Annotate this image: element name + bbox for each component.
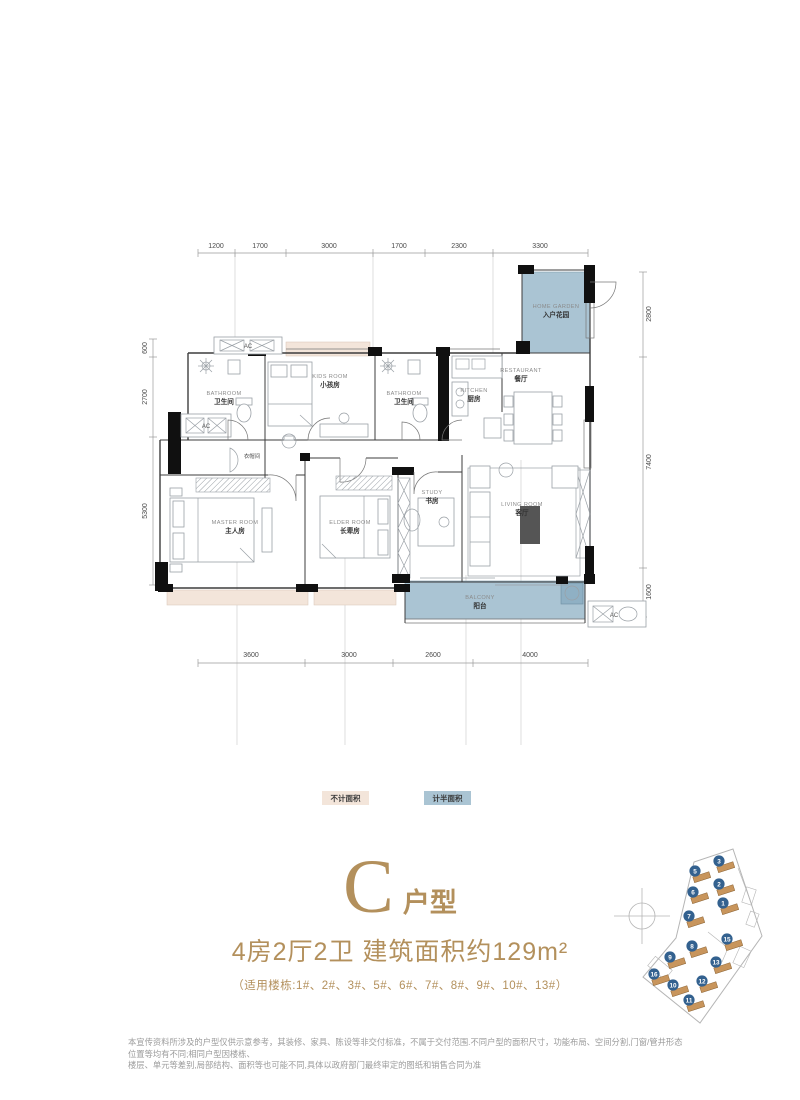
floor-plan: 1200 1700 3000 1700 2300 3300 3600 3000 … [0,0,800,760]
ac-platform-left: AC [181,414,231,437]
living-room-furniture [468,463,580,576]
dim-top-1: 1700 [252,243,268,250]
room-label-kids-room: KIDS ROOM小孩房 [312,374,348,389]
dim-left-0: 600 [142,342,149,354]
building-12: 12 [696,975,717,992]
disclaimer: 本宣传资料所涉及的户型仅供示意参考，其装修、家具、陈设等非交付标准，不属于交付范… [128,1037,684,1072]
svg-text:2: 2 [717,881,721,888]
svg-text:卫生间: 卫生间 [214,397,234,406]
ac-platform-top: AC [214,337,282,354]
dimension-ruler-left: 600 2700 5300 [142,339,157,585]
dim-bottom-1: 3000 [341,652,357,659]
svg-text:5: 5 [693,868,697,875]
dim-right-2: 1600 [646,584,653,600]
svg-text:9: 9 [668,954,672,961]
master-room-door [268,475,296,501]
svg-text:BATHROOM: BATHROOM [206,391,241,397]
master-bay-window [167,590,308,605]
dimension-ruler-right: 2800 7400 1600 [639,272,653,617]
building-16: 16 [648,968,669,985]
svg-text:11: 11 [686,997,693,1004]
elder-room-furniture [320,476,392,558]
ac-label-top: AC [244,344,253,350]
building-8: 8 [686,940,707,957]
ac-platform-bottom-right: AC [588,601,646,627]
colored-zones [167,272,590,619]
svg-text:15: 15 [723,936,731,943]
building-7: 7 [683,910,704,927]
dim-left-2: 5300 [142,503,149,519]
svg-text:LIVING ROOM: LIVING ROOM [501,502,543,508]
svg-text:8: 8 [690,943,694,950]
svg-text:书房: 书房 [425,496,439,505]
disclaimer-line-2: 楼层、单元等差别,局部结构、面积等也可能不同,具体以政府部门最终审定的图纸和销售… [128,1060,684,1072]
svg-text:MASTER ROOM: MASTER ROOM [212,520,259,526]
dim-top-2: 3000 [321,243,337,250]
dim-bottom-2: 2600 [425,652,441,659]
svg-text:BATHROOM: BATHROOM [386,391,421,397]
building-1: 1 [717,897,738,914]
svg-text:7: 7 [687,913,691,920]
svg-text:6: 6 [691,889,695,896]
compass-icon [614,888,670,944]
building-3: 3 [713,855,734,872]
master-room-furniture [170,448,272,572]
building-9: 9 [664,951,685,968]
dim-bottom-3: 4000 [522,652,538,659]
dim-top-3: 1700 [391,243,407,250]
ac-label-left: AC [202,424,211,430]
svg-text:1: 1 [721,900,725,907]
building-11: 11 [683,994,704,1011]
dim-right-0: 2800 [646,306,653,322]
legend-half-area-label: 计半面积 [433,793,463,804]
svg-text:BALCONY: BALCONY [465,595,495,601]
building-2: 2 [713,878,734,895]
svg-text:长辈房: 长辈房 [340,526,360,535]
dimension-ruler-top: 1200 1700 3000 1700 2300 3300 [198,243,588,257]
legend-no-area-label: 不计面积 [331,793,361,804]
dim-top-0: 1200 [208,243,224,250]
dimension-ruler-bottom: 3600 3000 2600 4000 [198,652,588,667]
building-13: 13 [710,956,731,973]
dim-right-1: 7400 [646,454,653,470]
dim-top-5: 3300 [532,243,548,250]
room-label-restaurant: RESTAURANT餐厅 [500,368,542,383]
bathroom-1-fixtures [198,358,252,422]
building-10: 10 [667,979,688,996]
elder-bay-window [314,590,396,605]
svg-text:3: 3 [717,858,721,865]
svg-text:餐厅: 餐厅 [514,374,528,383]
svg-text:衣帽间: 衣帽间 [244,452,260,460]
svg-text:HOME GARDEN: HOME GARDEN [533,304,580,310]
room-label-cloakroom: 衣帽间 [244,452,260,460]
svg-text:客厅: 客厅 [514,508,529,517]
site-plan: 3 5 2 6 1 7 15 8 9 13 16 12 10 11 [600,830,800,1040]
svg-text:10: 10 [669,982,677,989]
balcony-area [405,581,585,619]
legend-no-area: 不计面积 [322,791,369,805]
site-buildings: 3 5 2 6 1 7 15 8 9 13 16 12 10 11 [648,855,742,1011]
svg-text:STUDY: STUDY [422,490,443,496]
svg-text:主人房: 主人房 [225,526,245,535]
dim-left-1: 2700 [142,389,149,405]
svg-text:厨房: 厨房 [467,394,481,403]
svg-text:13: 13 [712,959,720,966]
svg-text:KIDS ROOM: KIDS ROOM [312,374,348,380]
dim-top-4: 2300 [451,243,467,250]
svg-text:卫生间: 卫生间 [394,397,414,406]
svg-text:入户花园: 入户花园 [543,310,570,319]
svg-text:12: 12 [698,978,706,985]
building-6: 6 [687,886,708,903]
study-furniture [404,498,454,546]
bathroom-2-fixtures [380,358,428,422]
svg-text:小孩房: 小孩房 [320,380,340,389]
svg-text:阳台: 阳台 [473,601,487,610]
bathroom-2-door [402,422,420,440]
building-5: 5 [689,865,710,882]
unit-letter: C [343,852,394,922]
disclaimer-line-1: 本宣传资料所涉及的户型仅供示意参考，其装修、家具、陈设等非交付标准，不属于交付范… [128,1037,684,1060]
ac-label-br: AC [610,613,619,619]
svg-text:ELDER ROOM: ELDER ROOM [329,520,371,526]
dining-table [504,392,562,444]
svg-text:RESTAURANT: RESTAURANT [500,368,542,374]
svg-text:16: 16 [650,971,658,978]
dim-bottom-0: 3600 [243,652,259,659]
svg-text:KITCHEN: KITCHEN [460,388,487,394]
unit-type-label: 户型 [403,881,457,920]
legend-half-area: 计半面积 [424,791,471,805]
